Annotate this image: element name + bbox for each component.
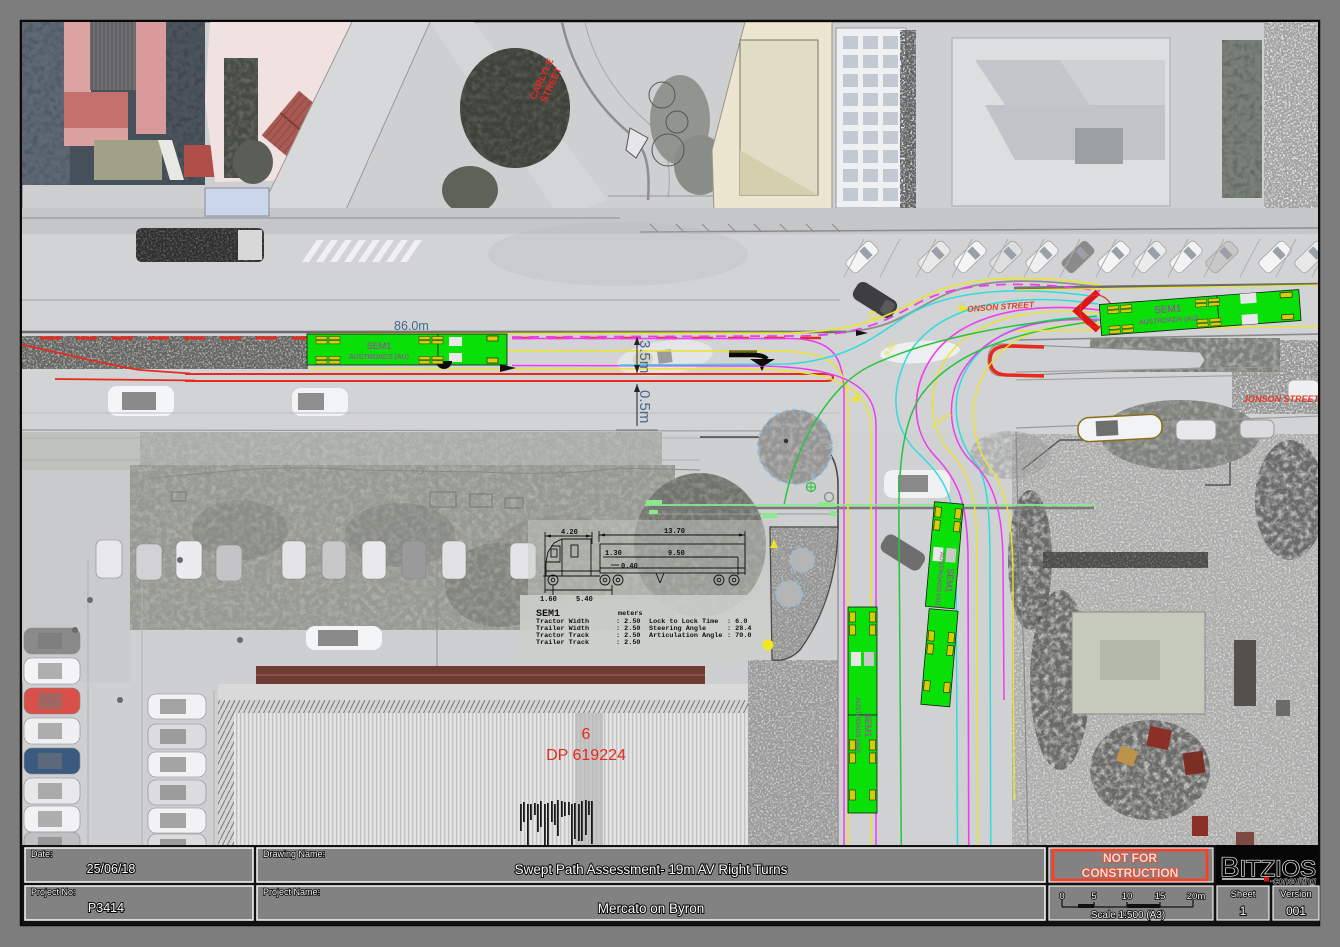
svg-text:AUSTROADS (AU): AUSTROADS (AU) xyxy=(854,697,861,753)
svg-text:NOT FOR: NOT FOR xyxy=(1103,851,1157,865)
svg-text:Date:: Date: xyxy=(31,849,53,859)
svg-text:Sheet: Sheet xyxy=(1231,889,1256,900)
svg-text:Drawing Name:: Drawing Name: xyxy=(263,849,325,859)
svg-text:1.60: 1.60 xyxy=(540,596,557,604)
svg-text:5.40: 5.40 xyxy=(576,596,593,604)
svg-text:1.30: 1.30 xyxy=(605,550,622,558)
svg-text:: 70.0: : 70.0 xyxy=(727,632,751,640)
svg-text:10: 10 xyxy=(1122,891,1133,902)
svg-text:SEM1: SEM1 xyxy=(863,713,873,738)
svg-text:: 2.50: : 2.50 xyxy=(616,639,640,647)
svg-text:Project No:: Project No: xyxy=(31,887,76,897)
svg-text:Scale 1:500 (A3): Scale 1:500 (A3) xyxy=(1091,910,1166,921)
svg-text:SEM1: SEM1 xyxy=(1154,303,1182,316)
svg-text:15: 15 xyxy=(1155,891,1166,902)
svg-text:Swept Path Assessment- 19m AV: Swept Path Assessment- 19m AV Right Turn… xyxy=(515,862,788,877)
svg-text:CONSTRUCTION: CONSTRUCTION xyxy=(1082,866,1179,880)
svg-text:20m: 20m xyxy=(1187,891,1206,902)
svg-text:P3414: P3414 xyxy=(88,901,124,915)
svg-text:-consulting: -consulting xyxy=(1270,876,1317,887)
svg-text:AUSTROADS (AU): AUSTROADS (AU) xyxy=(349,354,409,361)
svg-text:JONSON STREET: JONSON STREET xyxy=(1243,394,1321,404)
svg-text:meters: meters xyxy=(618,610,642,618)
svg-text:25/06/18: 25/06/18 xyxy=(87,862,136,876)
svg-text:13.70: 13.70 xyxy=(664,528,685,536)
svg-text:Trailer Track: Trailer Track xyxy=(536,639,589,647)
svg-text:9.50: 9.50 xyxy=(668,550,685,558)
svg-text:1: 1 xyxy=(1240,904,1247,918)
svg-text:0.5m: 0.5m xyxy=(636,390,653,423)
svg-text:0: 0 xyxy=(1059,891,1064,902)
svg-text:SEM1: SEM1 xyxy=(944,568,956,593)
svg-text:Articulation Angle: Articulation Angle xyxy=(649,632,722,640)
svg-text:001: 001 xyxy=(1286,904,1306,918)
svg-text:4.20: 4.20 xyxy=(561,529,578,537)
svg-text:3.5m: 3.5m xyxy=(636,340,653,373)
svg-text:Project Name:: Project Name: xyxy=(263,887,320,897)
svg-text:5: 5 xyxy=(1091,891,1096,902)
svg-text:6: 6 xyxy=(582,726,591,743)
svg-text:Version: Version xyxy=(1280,889,1312,900)
svg-text:DP 619224: DP 619224 xyxy=(546,747,626,764)
svg-text:Mercato on Byron: Mercato on Byron xyxy=(598,901,705,916)
svg-text:0.40: 0.40 xyxy=(621,563,638,571)
svg-text:86.0m: 86.0m xyxy=(394,319,429,333)
svg-text:SEM1: SEM1 xyxy=(367,341,392,351)
